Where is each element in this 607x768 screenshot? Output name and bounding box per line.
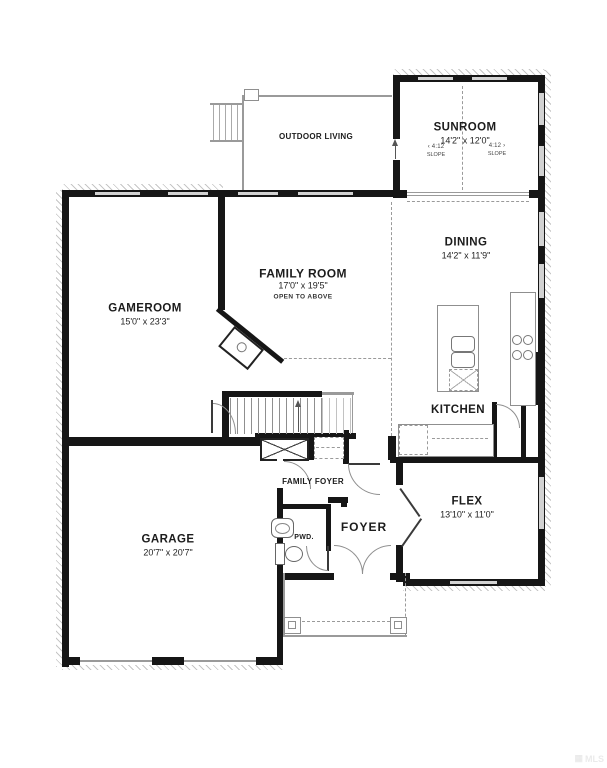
powder-door-arc <box>306 546 328 571</box>
window <box>539 264 544 298</box>
pantry-door-arc <box>496 404 520 428</box>
french-door-leaf <box>401 518 422 547</box>
window <box>450 581 497 584</box>
wall <box>393 75 545 82</box>
wall <box>393 190 407 198</box>
wall <box>283 573 324 580</box>
wall <box>222 391 322 397</box>
window <box>539 93 544 125</box>
flex-label: FLEX 13'10" x 11'0" <box>440 496 494 521</box>
wall <box>393 75 400 197</box>
burner <box>512 350 522 360</box>
sunroom-arrow-head-icon <box>392 139 398 146</box>
family-foyer-label: FAMILY FOYER <box>282 477 344 487</box>
toilet-tank <box>275 543 285 565</box>
fireplace <box>219 307 284 360</box>
kitchen-sink-icon <box>451 336 475 369</box>
mls-watermark: ▦ MLS <box>574 753 604 764</box>
wall <box>396 457 403 485</box>
wall <box>388 436 396 460</box>
toilet-icon <box>275 543 303 565</box>
sliding-door-track <box>407 195 529 196</box>
window <box>472 77 507 80</box>
dashed-boundary <box>284 358 391 359</box>
window <box>418 77 453 80</box>
powder-sink-icon <box>271 518 294 538</box>
door-arc <box>348 464 380 495</box>
garage-door <box>184 660 256 662</box>
porch-column <box>390 617 407 634</box>
cooktop-icon <box>511 334 535 366</box>
toilet-bowl <box>285 546 303 562</box>
porch-column <box>284 617 301 634</box>
porch-column-core <box>288 621 296 629</box>
mls-logo-icon: ▦ <box>574 753 583 764</box>
dining-label: DINING 14'2" x 11'9" <box>442 237 491 262</box>
wall <box>283 504 328 509</box>
wall <box>62 437 283 446</box>
outdoor-steps-rail <box>210 140 242 142</box>
french-door-leaf <box>400 488 421 517</box>
burner <box>523 335 533 345</box>
understair-closet <box>260 438 309 461</box>
garage-label: GARAGE 20'7" x 20'7" <box>142 534 195 559</box>
exterior-wall-hatch <box>62 665 283 670</box>
wall <box>62 190 69 667</box>
sink-basin <box>451 336 475 352</box>
patio-edge <box>242 95 392 97</box>
porch-edge <box>283 635 407 637</box>
window <box>539 146 544 176</box>
window <box>95 192 140 195</box>
wall <box>218 190 225 310</box>
dashed-line <box>407 201 529 202</box>
sliding-door-track <box>407 192 529 193</box>
patio-corner-notch <box>244 89 259 101</box>
kitchen-label: KITCHEN <box>431 404 485 418</box>
dashed-boundary <box>391 202 392 436</box>
stair-wall-upper <box>352 395 353 435</box>
outdoor-steps <box>213 105 239 141</box>
dishwasher-icon <box>449 369 478 391</box>
basin <box>275 523 290 534</box>
porch-roof-dashed <box>287 621 405 622</box>
porch-column-core <box>394 621 402 629</box>
front-door-arc <box>334 545 363 574</box>
window <box>539 212 544 246</box>
sunroom-door-arrow <box>395 145 396 159</box>
front-door-arc <box>362 545 391 574</box>
exterior-wall-hatch <box>403 586 545 591</box>
refrigerator-icon <box>399 425 428 455</box>
family-room-label: FAMILY ROOM 17'0" x 19'5" OPEN TO ABOVE <box>259 267 347 302</box>
burner <box>523 350 533 360</box>
outdoor-living-label: OUTDOOR LIVING <box>279 132 353 142</box>
floor-plan: SUNROOM 14'2" x 12'0" ‹ 4:12 SLOPE 4:12 … <box>0 0 607 768</box>
garage-door <box>80 660 152 662</box>
window <box>539 477 544 529</box>
window <box>238 192 278 195</box>
stair-direction-arrow <box>298 406 299 432</box>
wall <box>341 497 347 507</box>
roof-slope-right: 4:12 › SLOPE <box>488 143 506 157</box>
wall <box>390 457 545 463</box>
stair-wall-upper <box>322 392 354 395</box>
window <box>298 192 353 195</box>
foyer-label: FOYER <box>341 520 387 534</box>
staircase-upper <box>322 398 352 434</box>
exterior-wall-hatch <box>545 70 551 587</box>
shelf-line <box>316 447 340 448</box>
window <box>168 192 208 195</box>
staircase <box>230 398 322 434</box>
patio-edge <box>242 95 244 195</box>
gameroom-label: GAMEROOM 15'0" x 23'3" <box>108 303 181 328</box>
wall <box>521 400 526 457</box>
wall <box>326 504 331 551</box>
stair-arrow-head-icon <box>295 400 301 407</box>
powder-label: PWD. <box>294 534 313 542</box>
shelf-closet <box>314 437 344 459</box>
wall <box>396 545 403 582</box>
burner <box>512 335 522 345</box>
upper-cabinet-line <box>432 438 488 439</box>
sink-basin <box>451 352 475 368</box>
roof-slope-left: ‹ 4:12 SLOPE <box>427 144 445 158</box>
